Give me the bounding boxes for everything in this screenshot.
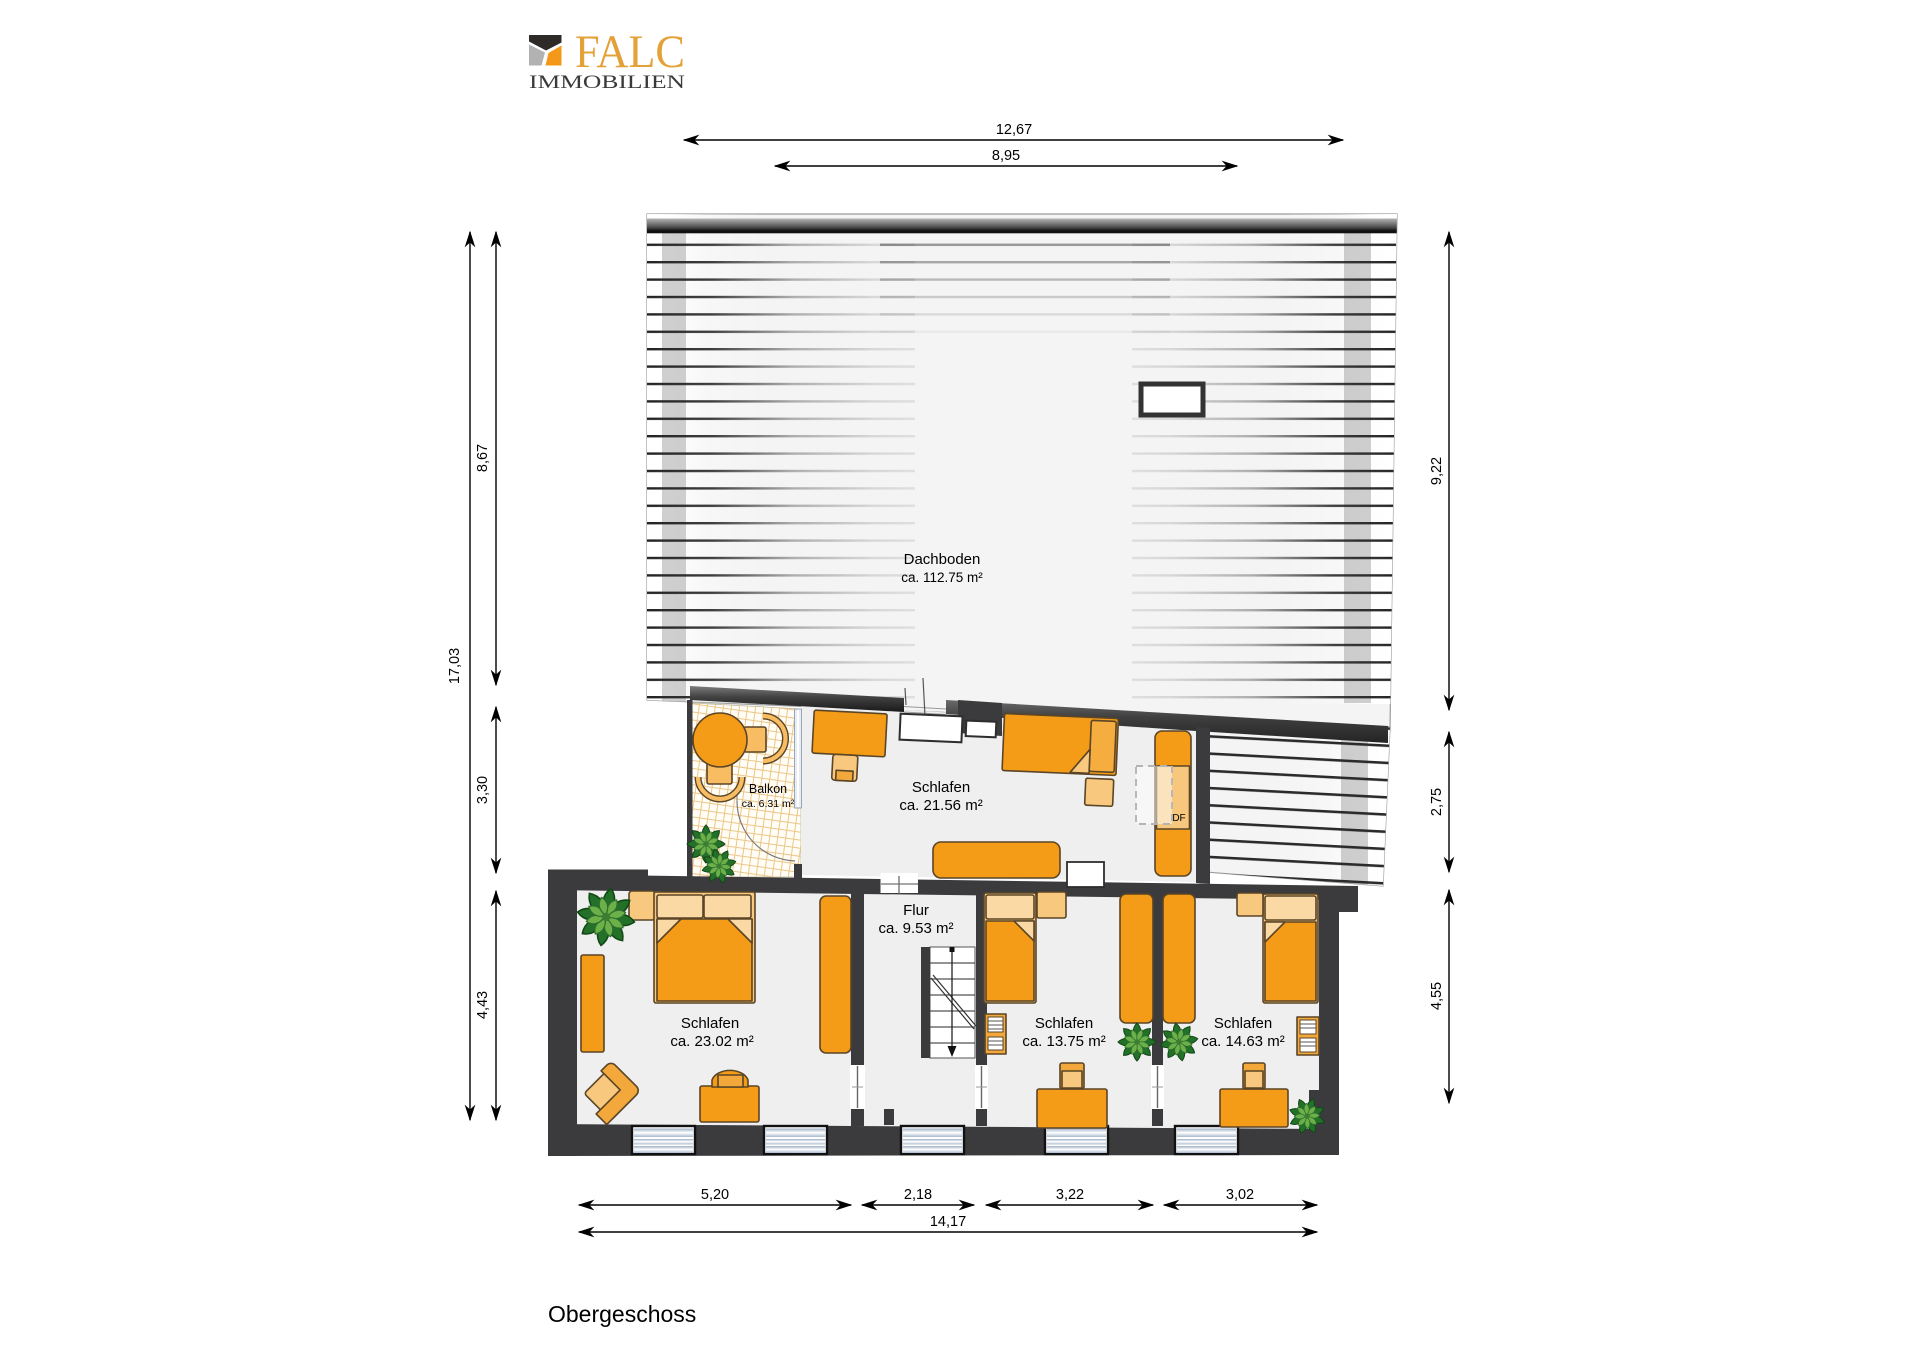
svg-text:2,75: 2,75 (1429, 788, 1445, 816)
svg-text:Balkon: Balkon (749, 782, 787, 796)
svg-text:ca. 14.63 m²: ca. 14.63 m² (1201, 1033, 1284, 1050)
svg-text:12,67: 12,67 (996, 122, 1032, 138)
svg-text:ca. 23.02 m²: ca. 23.02 m² (670, 1033, 753, 1050)
svg-text:Flur: Flur (903, 902, 929, 919)
svg-text:ca. 112.75 m²: ca. 112.75 m² (901, 570, 983, 585)
svg-text:3,02: 3,02 (1226, 1187, 1254, 1203)
svg-text:3,22: 3,22 (1056, 1187, 1084, 1203)
svg-text:ca. 6.31 m²: ca. 6.31 m² (742, 798, 795, 810)
svg-text:Schlafen: Schlafen (681, 1015, 739, 1032)
svg-text:8,95: 8,95 (992, 148, 1020, 164)
svg-text:ca. 21.56 m²: ca. 21.56 m² (899, 797, 982, 814)
svg-text:9,22: 9,22 (1429, 457, 1445, 485)
svg-text:8,67: 8,67 (475, 444, 491, 472)
svg-text:Schlafen: Schlafen (1035, 1015, 1093, 1032)
svg-text:Dachboden: Dachboden (904, 551, 981, 568)
svg-text:IMMOBILIEN: IMMOBILIEN (529, 72, 685, 93)
svg-text:Schlafen: Schlafen (912, 779, 970, 796)
svg-text:ca. 13.75 m²: ca. 13.75 m² (1022, 1033, 1105, 1050)
svg-text:ca. 9.53 m²: ca. 9.53 m² (878, 920, 953, 937)
svg-text:FALC: FALC (575, 26, 685, 78)
svg-text:17,03: 17,03 (447, 648, 463, 684)
svg-text:4,55: 4,55 (1429, 982, 1445, 1010)
svg-text:Schlafen: Schlafen (1214, 1015, 1272, 1032)
svg-text:DF: DF (1172, 813, 1185, 824)
svg-text:2,18: 2,18 (904, 1187, 932, 1203)
svg-text:14,17: 14,17 (930, 1214, 966, 1230)
svg-text:4,43: 4,43 (475, 991, 491, 1019)
svg-text:5,20: 5,20 (701, 1187, 729, 1203)
svg-text:3,30: 3,30 (475, 776, 491, 804)
svg-text:Obergeschoss: Obergeschoss (548, 1301, 696, 1327)
